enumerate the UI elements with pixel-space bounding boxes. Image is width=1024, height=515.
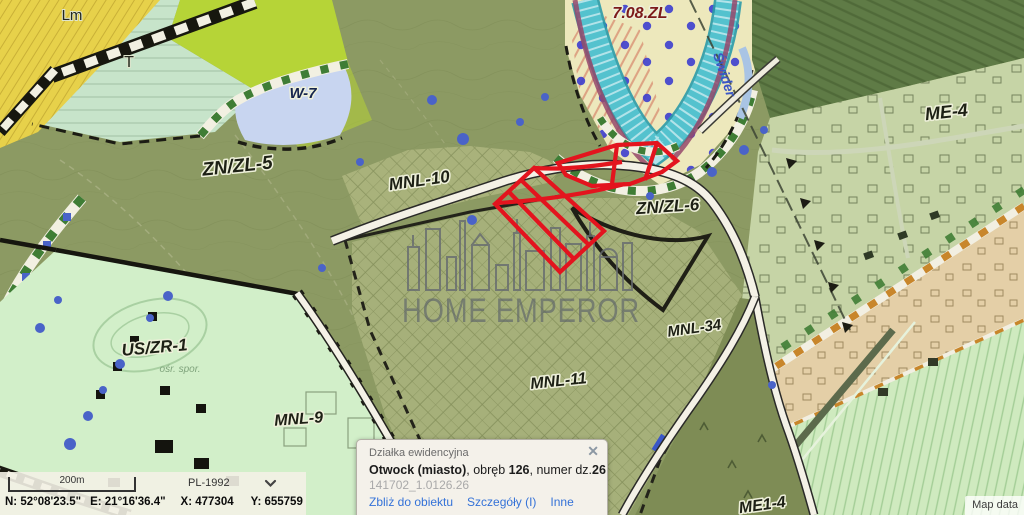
coord-n: N: 52°08'23.5": [5, 496, 81, 508]
crs-selector[interactable]: PL-1992: [188, 477, 277, 489]
popup-parcel-number: 26: [592, 463, 606, 477]
close-icon[interactable]: ✕: [587, 444, 599, 458]
parcel-info-popup: Działka ewidencyjna ✕ Otwock (miasto), o…: [356, 439, 608, 515]
coord-y: Y: 655759: [251, 496, 303, 508]
zone-label-mnl9: MNL-9: [274, 409, 324, 429]
zone-label-lm: Lm: [62, 7, 83, 24]
scale-bar: 200m: [8, 477, 136, 492]
zoom-to-object-link[interactable]: Zbliż do obiektu: [369, 495, 453, 509]
zone-label-t: T: [124, 54, 134, 71]
map-viewer: HOME EMPEROR Lm T W-7 ZN/ZL-5 MNL-10 7.0…: [0, 0, 1024, 515]
coordinates-readout: N: 52°08'23.5" E: 21°16'36.4" X: 477304 …: [5, 496, 303, 508]
map-statusbar: 200m PL-1992 N: 52°08'23.5" E: 21°16'36.…: [0, 472, 306, 515]
popup-city: Otwock (miasto): [369, 463, 466, 477]
popup-links: Zbliż do obiektuSzczegóły (I)Inne: [369, 495, 597, 509]
watermark-text: HOME EMPEROR: [402, 292, 640, 330]
details-link[interactable]: Szczegóły (I): [467, 495, 536, 509]
popup-precinct: 126: [509, 463, 530, 477]
crs-label: PL-1992: [188, 477, 230, 489]
zone-label-708zl: 7.08.ZL: [612, 5, 667, 22]
coord-x: X: 477304: [181, 496, 234, 508]
map-canvas[interactable]: HOME EMPEROR Lm T W-7 ZN/ZL-5 MNL-10 7.0…: [0, 0, 1024, 515]
area-note-label: ośr. spor.: [160, 364, 201, 375]
popup-title: Działka ewidencyjna: [369, 447, 597, 460]
chevron-down-icon[interactable]: [264, 479, 277, 488]
scale-label: 200m: [10, 475, 134, 487]
map-attribution: Map data: [965, 496, 1024, 515]
popup-parcel-id: 141702_1.0126.26: [369, 478, 597, 493]
other-link[interactable]: Inne: [550, 495, 573, 509]
zone-label-w7: W-7: [290, 85, 318, 102]
coord-e: E: 21°16'36.4": [90, 496, 165, 508]
popup-parcel-line: Otwock (miasto), obręb 126, numer dz.26: [369, 462, 597, 478]
